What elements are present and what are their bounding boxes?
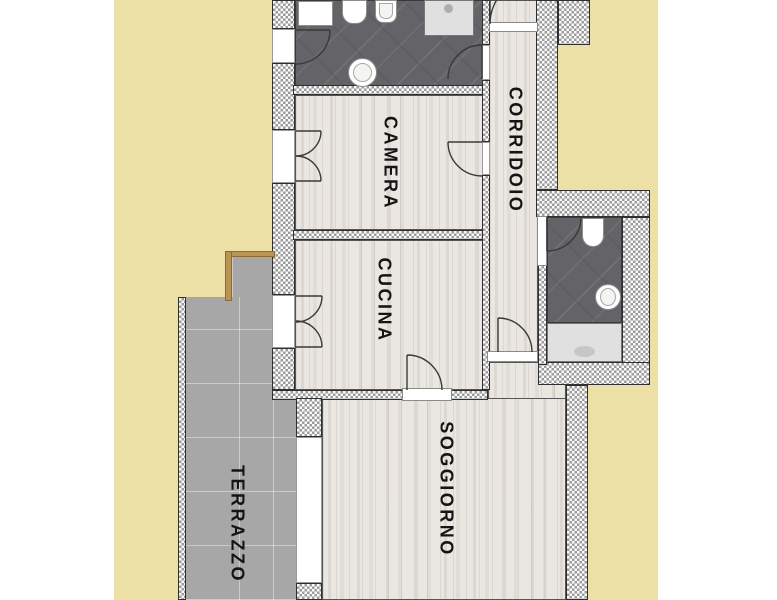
- threshold-corridoio-soggiorno: [487, 351, 538, 362]
- wall-segment: [272, 0, 295, 29]
- washbasin-icon: [595, 284, 621, 310]
- wall-segment: [482, 80, 490, 142]
- door-opening-cucina-terrazzo: [272, 295, 295, 348]
- washbasin-bowl: [353, 63, 372, 82]
- terrace-railing: [225, 251, 232, 301]
- floor-terrazzo-strip: [273, 400, 296, 600]
- wall-segment: [296, 583, 322, 600]
- washbasin-icon: [348, 58, 377, 87]
- door-opening-bathroom-top: [482, 45, 490, 80]
- floor-plan: CAMERA CORRIDOIO CUCINA SOGGIORNO TERRAZ…: [0, 0, 777, 600]
- wall-segment: [622, 217, 650, 385]
- vanity-icon: [298, 1, 333, 26]
- bathtub-icon: [375, 0, 397, 23]
- wall-segment: [536, 190, 650, 217]
- window-opening-soggiorno: [296, 437, 322, 583]
- wall-segment: [296, 398, 322, 437]
- wall-segment: [536, 0, 558, 190]
- wall-cucina-soggiorno: [272, 390, 403, 400]
- wall-segment: [272, 348, 295, 390]
- shower-drain-icon: [574, 346, 595, 357]
- door-opening-camera: [482, 142, 490, 175]
- wall-camera-cucina: [293, 230, 483, 240]
- threshold-cucina-soggiorno: [402, 388, 452, 401]
- window-opening-camera: [272, 130, 295, 183]
- wall-segment: [538, 362, 650, 385]
- wall-bathroom-camera: [293, 85, 483, 95]
- washbasin-bowl: [600, 288, 616, 306]
- room-label-corridoio: CORRIDOIO: [505, 87, 526, 214]
- toilet-icon: [582, 218, 604, 247]
- entrance-threshold: [489, 22, 538, 32]
- floor-terrazzo-upper: [232, 256, 273, 300]
- wall-segment: [272, 63, 295, 130]
- room-label-soggiorno: SOGGIORNO: [436, 421, 457, 557]
- terrace-railing: [225, 251, 275, 257]
- window-opening-bathroom: [272, 29, 295, 63]
- room-label-camera: CAMERA: [380, 116, 401, 210]
- bathtub-basin: [379, 3, 393, 19]
- wall-cucina-soggiorno: [451, 390, 488, 400]
- terrace-parapet-wall: [178, 297, 186, 600]
- wall-segment: [558, 0, 590, 45]
- room-label-terrazzo: TERRAZZO: [227, 465, 248, 583]
- shower-drain-icon: [444, 4, 453, 13]
- wall-segment: [272, 183, 295, 295]
- wall-segment: [566, 385, 588, 600]
- door-opening-bathroom-right: [537, 216, 547, 266]
- room-label-cucina: CUCINA: [374, 258, 395, 343]
- wall-segment: [538, 265, 547, 365]
- toilet-icon: [342, 0, 367, 24]
